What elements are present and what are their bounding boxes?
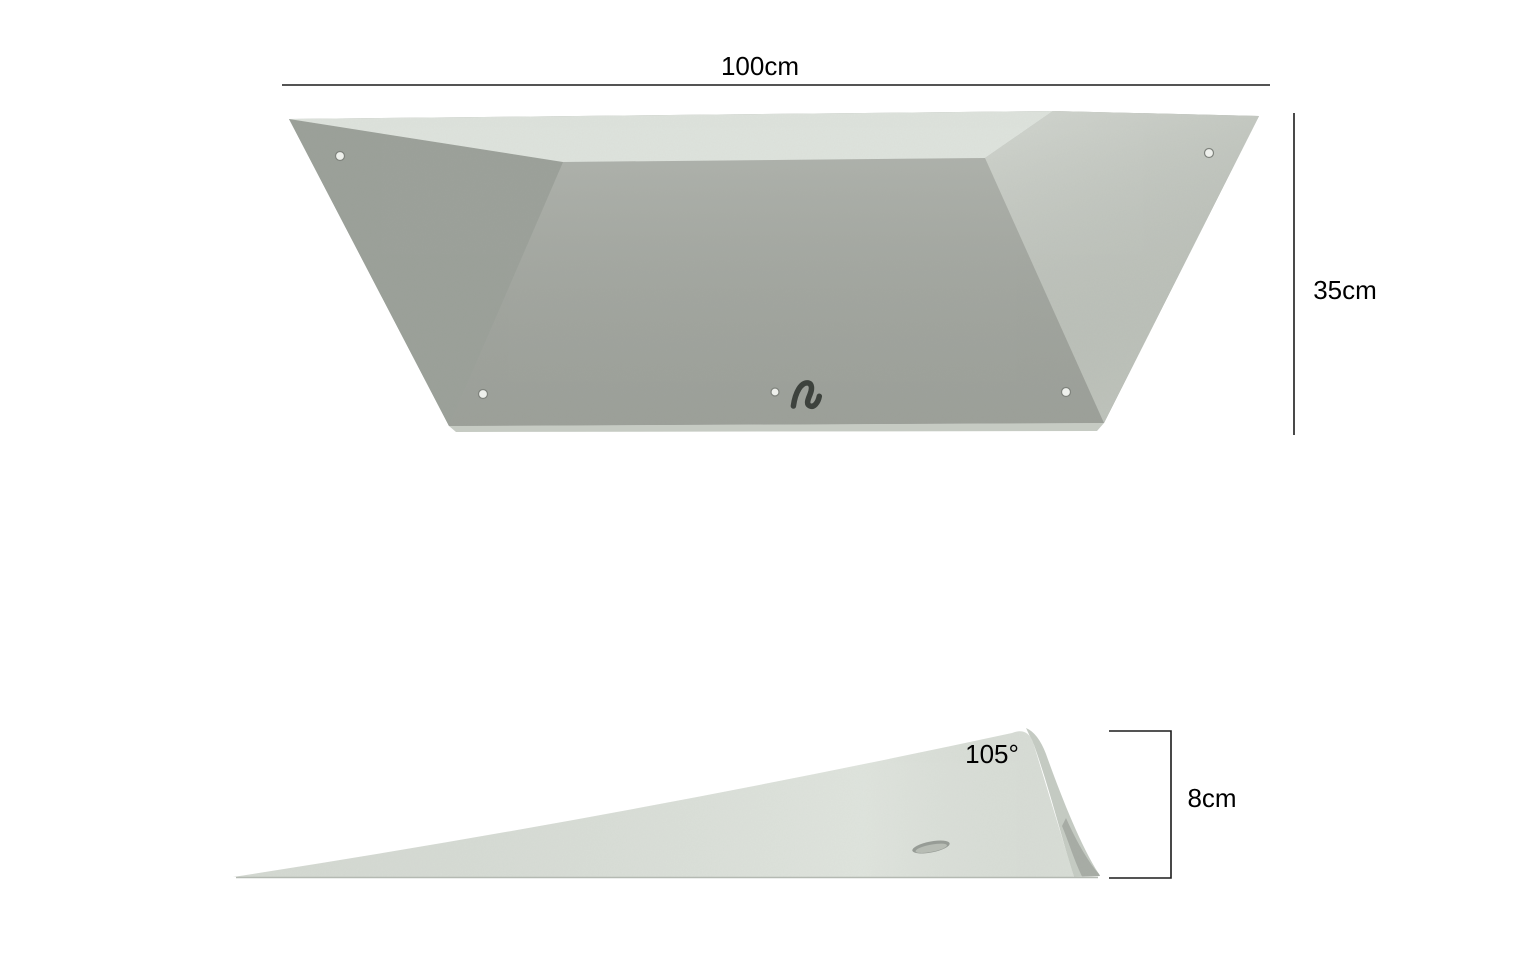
depth-dimension-label: 8cm [1162, 784, 1262, 812]
height-dimension-label: 35cm [1295, 276, 1395, 304]
screw-hole-icon [336, 152, 345, 161]
screw-hole-icon [771, 388, 779, 396]
screw-hole-icon [1205, 149, 1214, 158]
side-view-texture [220, 710, 1120, 890]
diagram-canvas [0, 0, 1536, 974]
screw-hole-icon [1062, 388, 1071, 397]
top-view-drawing [280, 85, 1294, 440]
side-view-drawing [220, 710, 1171, 890]
screw-hole-icon [479, 390, 488, 399]
product-dimension-diagram: 100cm 35cm 105° 8cm [0, 0, 1536, 974]
angle-dimension-label: 105° [942, 740, 1042, 768]
width-dimension-label: 100cm [710, 52, 810, 80]
